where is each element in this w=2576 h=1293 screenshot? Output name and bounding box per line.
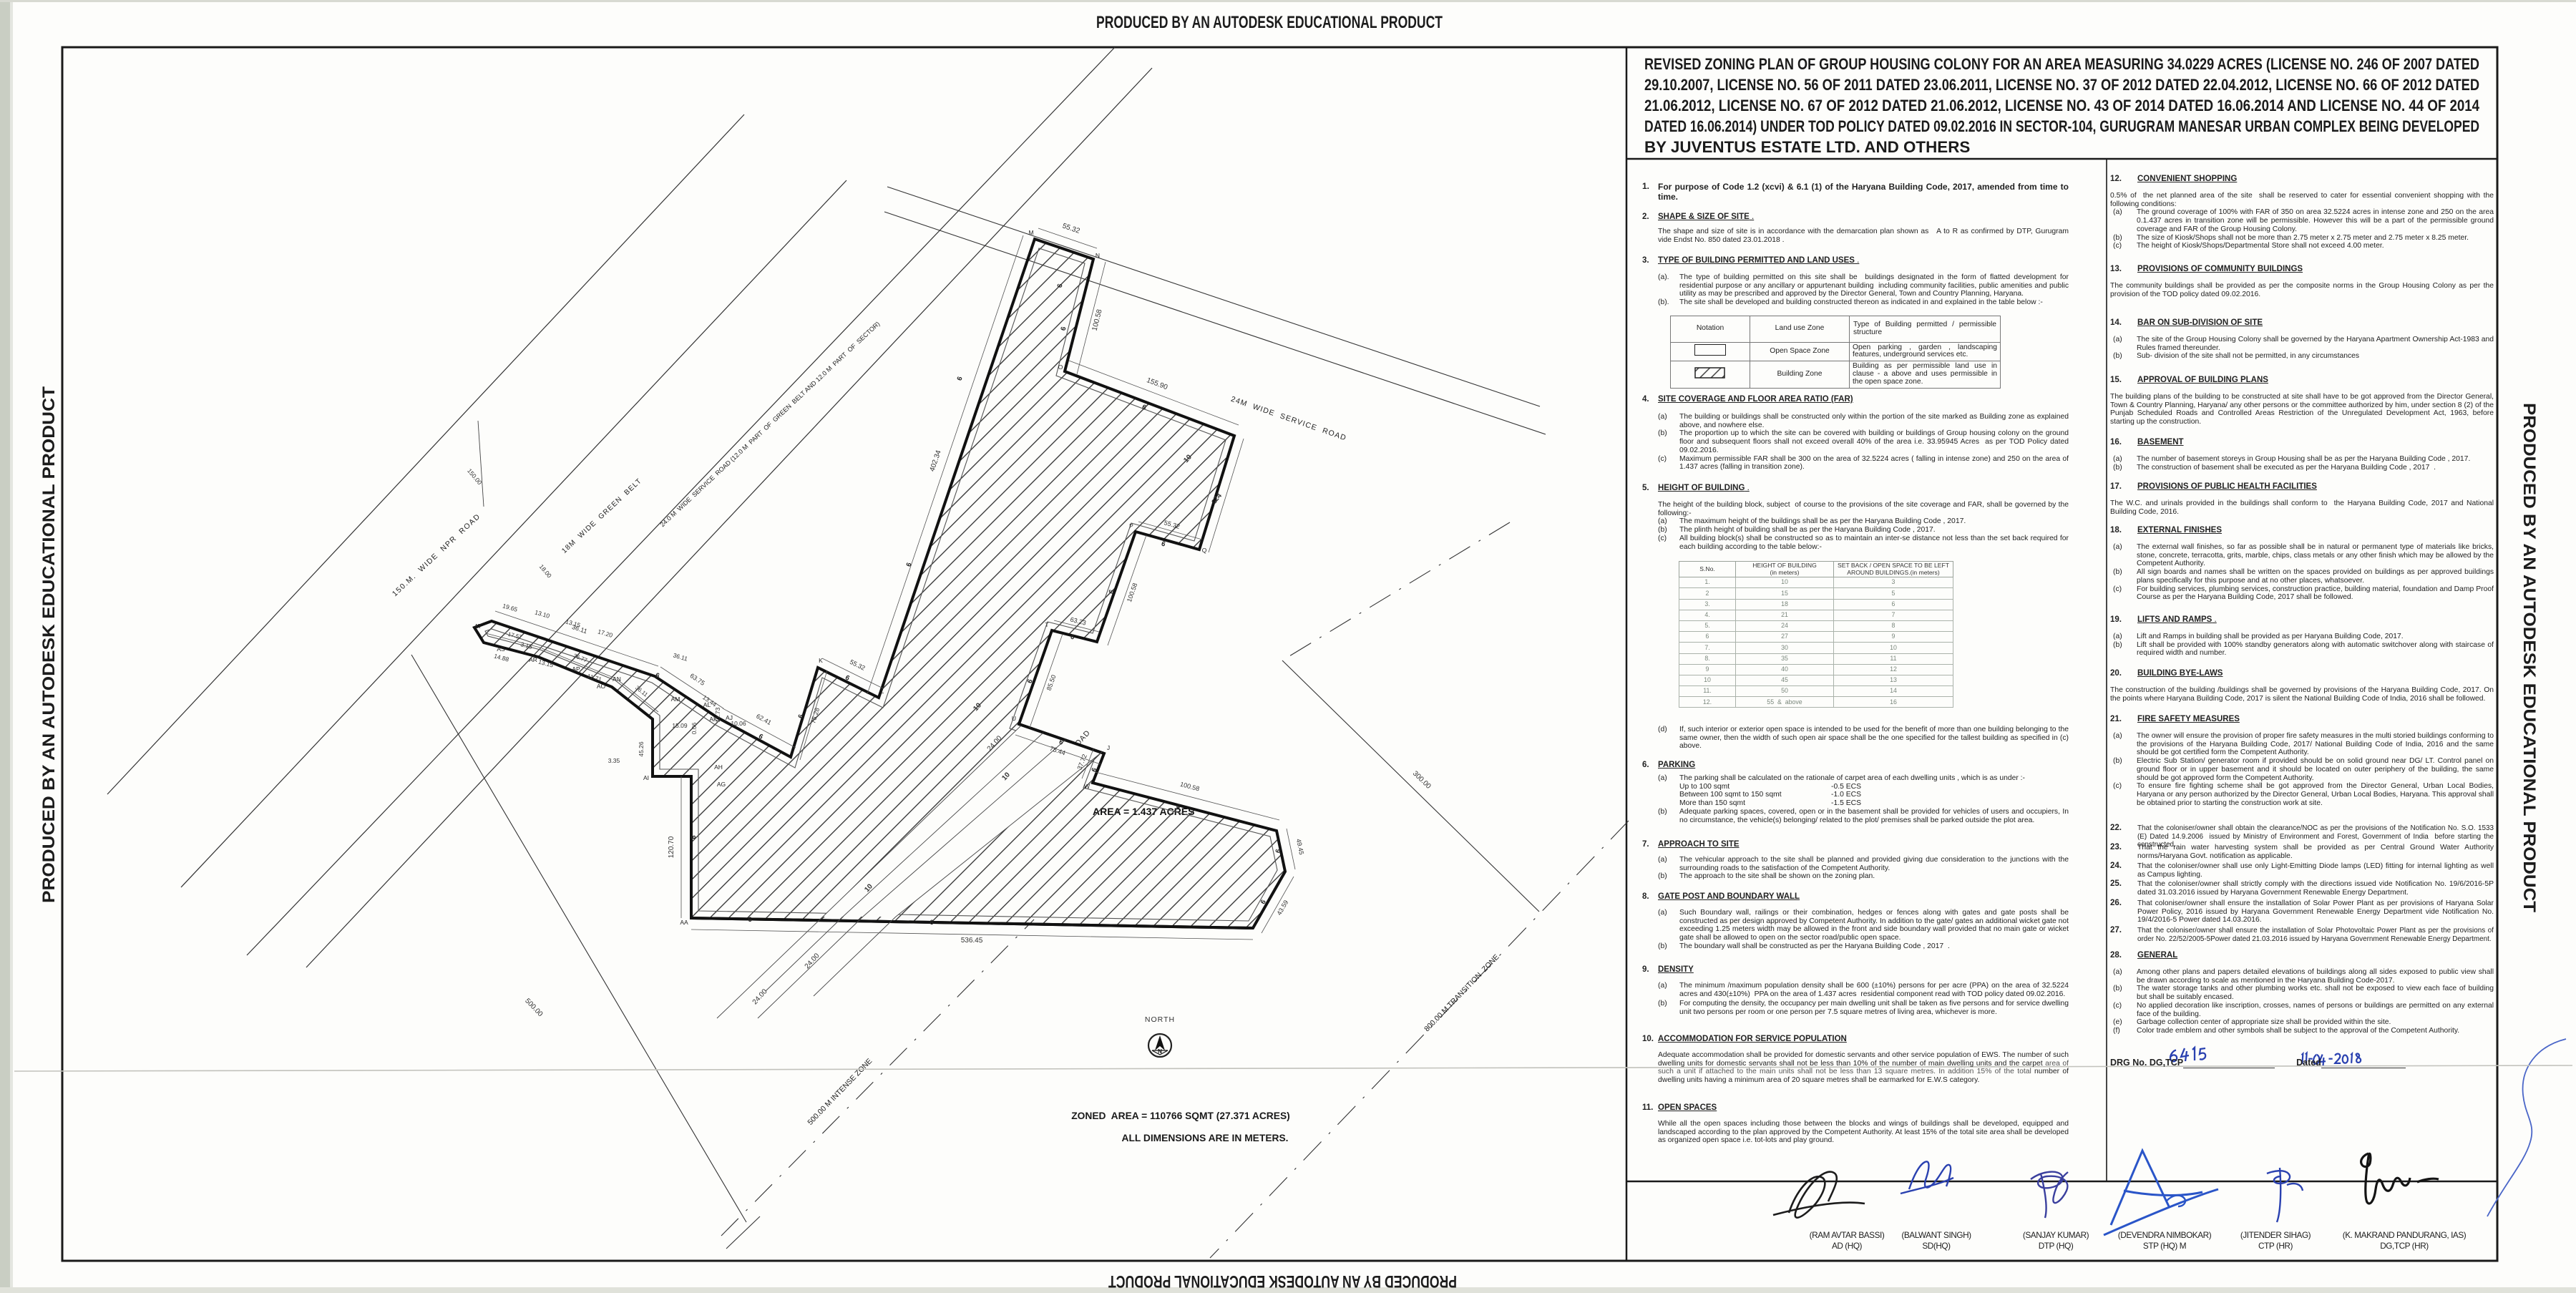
svg-text:AK: AK xyxy=(709,716,718,723)
svg-text:6: 6 xyxy=(930,919,933,927)
svg-text:AR: AR xyxy=(529,656,537,663)
svg-text:AS: AS xyxy=(497,645,505,653)
svg-text:120.70: 120.70 xyxy=(668,836,675,858)
svg-text:85.50: 85.50 xyxy=(1045,674,1058,692)
svg-text:6: 6 xyxy=(956,376,965,382)
svg-text:150.M. WIDE NPR ROAD: 150.M. WIDE NPR ROAD xyxy=(391,512,482,598)
svg-text:55.32: 55.32 xyxy=(1061,222,1081,235)
svg-text:N: N xyxy=(1096,252,1100,259)
svg-text:AN: AN xyxy=(613,675,621,683)
svg-text:6: 6 xyxy=(1161,540,1166,549)
svg-text:24M WIDE SERVICE ROAD: 24M WIDE SERVICE ROAD xyxy=(1229,395,1347,443)
svg-text:24.00: 24.00 xyxy=(804,952,821,970)
svg-text:18M WIDE GREEN BELT: 18M WIDE GREEN BELT xyxy=(560,477,643,555)
svg-text:AI: AI xyxy=(643,774,649,781)
svg-text:14.88: 14.88 xyxy=(493,653,509,663)
svg-text:AM: AM xyxy=(671,696,680,703)
svg-text:43.59: 43.59 xyxy=(1275,899,1289,917)
svg-text:O: O xyxy=(1058,363,1063,371)
svg-text:19.65: 19.65 xyxy=(502,602,518,613)
svg-text:6: 6 xyxy=(757,733,764,741)
svg-text:6: 6 xyxy=(844,674,851,683)
svg-text:AP: AP xyxy=(572,665,580,673)
svg-text:63.75: 63.75 xyxy=(688,672,706,687)
svg-text:AL: AL xyxy=(703,701,711,708)
svg-text:AJ: AJ xyxy=(726,714,733,721)
svg-text:15.09: 15.09 xyxy=(672,722,688,729)
svg-text:150.00: 150.00 xyxy=(466,467,484,487)
svg-text:45.26: 45.26 xyxy=(638,741,645,757)
svg-text:49.45: 49.45 xyxy=(1295,838,1305,855)
svg-text:U: U xyxy=(1012,715,1016,722)
svg-text:36.11: 36.11 xyxy=(673,651,689,662)
svg-text:13.10: 13.10 xyxy=(534,608,550,620)
svg-text:AO: AO xyxy=(597,683,606,690)
svg-text:155.90: 155.90 xyxy=(1146,376,1169,391)
svg-text:P: P xyxy=(1129,522,1133,530)
svg-text:100.58: 100.58 xyxy=(1126,582,1139,602)
svg-text:6: 6 xyxy=(690,835,698,839)
svg-text:10.06: 10.06 xyxy=(731,720,746,727)
svg-text:100.58: 100.58 xyxy=(1179,781,1200,793)
svg-text:J: J xyxy=(1107,744,1110,751)
svg-text:L: L xyxy=(881,688,884,695)
svg-text:AH: AH xyxy=(714,763,723,771)
svg-text:ALL DIMENSIONS ARE IN METERS.: ALL DIMENSIONS ARE IN METERS. xyxy=(1121,1133,1288,1143)
svg-text:800.00 M TRANSITION ZONE: 800.00 M TRANSITION ZONE xyxy=(1423,953,1501,1034)
svg-text:24.0 M WIDE SERVICE ROAD (1: 24.0 M WIDE SERVICE ROAD (12.0 M PART OF… xyxy=(659,320,882,528)
svg-text:NORTH: NORTH xyxy=(1145,1015,1175,1024)
svg-text:W: W xyxy=(1084,783,1090,790)
svg-text:62.41: 62.41 xyxy=(755,713,773,726)
svg-text:55.32: 55.32 xyxy=(849,658,867,672)
svg-text:AA: AA xyxy=(680,919,688,926)
svg-text:AT: AT xyxy=(474,623,482,630)
svg-text:536.45: 536.45 xyxy=(961,937,983,945)
svg-text:3.35: 3.35 xyxy=(608,757,620,764)
svg-text:T: T xyxy=(1045,621,1048,628)
svg-text:K: K xyxy=(819,657,823,664)
svg-text:M: M xyxy=(1028,229,1033,236)
svg-text:300.00: 300.00 xyxy=(1411,770,1433,791)
svg-text:17.20: 17.20 xyxy=(597,628,613,639)
svg-text:402.34: 402.34 xyxy=(928,449,942,473)
svg-text:6: 6 xyxy=(748,916,751,924)
svg-text:Q: Q xyxy=(1202,547,1207,554)
svg-text:AG: AG xyxy=(717,781,726,788)
svg-text:500.00: 500.00 xyxy=(523,997,544,1018)
svg-text:N: N xyxy=(1158,1048,1162,1055)
svg-text:0.06: 0.06 xyxy=(691,722,698,734)
svg-text:ZONED AREA = 110766 SQMT (27.: ZONED AREA = 110766 SQMT (27.371 ACRES) xyxy=(1071,1111,1290,1121)
svg-text:18.00: 18.00 xyxy=(538,563,554,580)
